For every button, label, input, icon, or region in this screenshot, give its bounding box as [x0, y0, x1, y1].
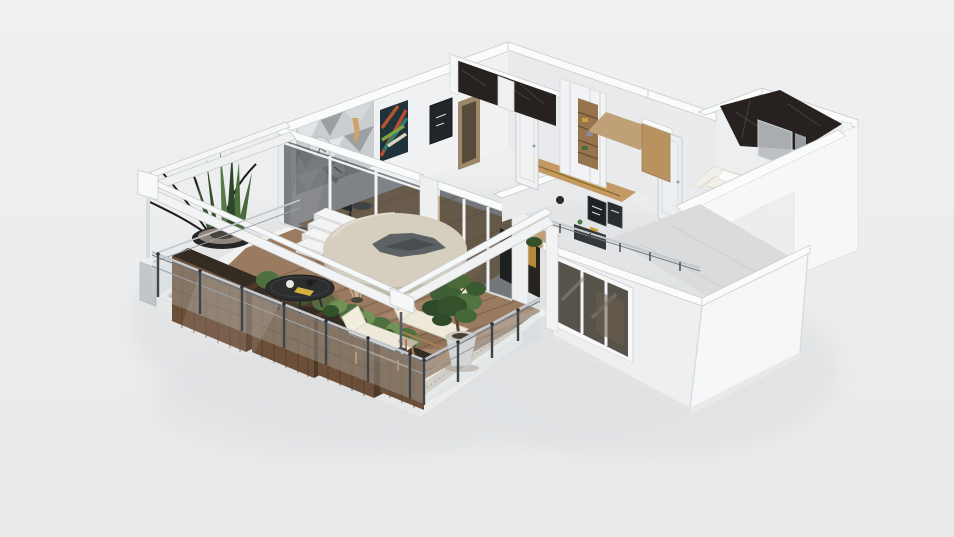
chevron-painting	[380, 100, 408, 162]
floorplan-3d-viewport[interactable]	[0, 0, 954, 537]
scene-svg	[0, 0, 954, 537]
bath-door	[498, 76, 514, 112]
volume-corner-post	[546, 224, 558, 332]
doorway-opening	[458, 94, 480, 170]
black-kettle	[306, 279, 313, 286]
shelf-unit	[578, 98, 598, 170]
bar-stool	[556, 196, 564, 204]
white-cup	[286, 280, 294, 288]
dark-art-frame	[430, 98, 452, 144]
